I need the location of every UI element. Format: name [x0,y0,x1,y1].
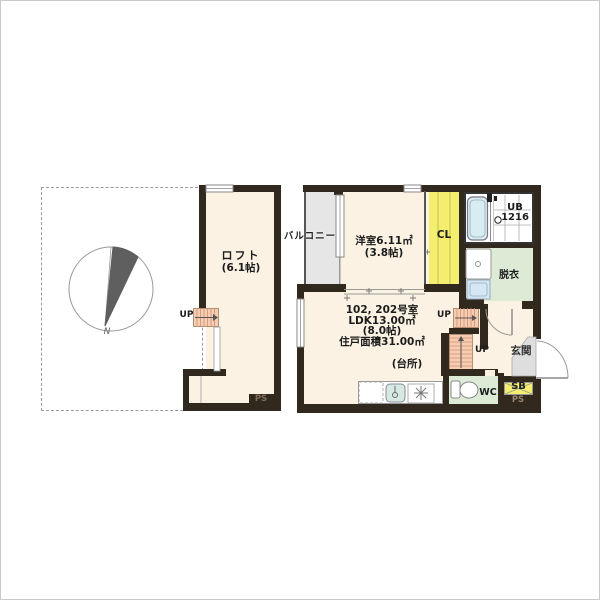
closet-label: CL [429,230,459,241]
wall-segment [297,284,304,299]
ps-left-label: PS [249,395,273,404]
western-room-label: 洋室6.11㎡ [341,236,427,247]
wall-segment [424,284,463,292]
up-main-lower-label: UP [473,346,491,355]
wall-segment [522,301,533,309]
wall-segment [297,404,541,413]
room-loft-extension [189,376,206,403]
wc-door-gap [485,370,495,376]
western-room-size-label: (3.8帖) [341,248,427,259]
total-area-line: 住戸面積31.00㎡ [307,337,457,348]
loft-label: ロフト [206,250,276,262]
wc-label: WC [476,388,500,398]
wall-segment [183,403,281,411]
unit-bath-model-label: 1216 [496,213,534,224]
wall-segment [274,185,281,411]
wall-segment [459,241,541,248]
wall-segment [199,185,281,192]
loft-stairs [193,308,219,327]
balcony-label: バルコニー [283,232,337,242]
floor-plan: バルコニー 洋室6.11㎡ (3.8帖) CL UB 1216 脱衣 玄関 WC… [0,0,600,600]
shoe-box-label: SB [504,382,533,393]
entrance-label: 玄関 [504,346,538,357]
wall-segment [297,347,304,404]
unit-info-block: 102, 202号室 LDK13.00㎡ (8.0帖) 住戸面積31.00㎡ [307,305,457,347]
wall-segment [199,185,206,308]
wall-segment [183,369,226,376]
compass-north-label: N [99,328,115,337]
up-main-upper-label: UP [436,311,452,320]
unit-number-line: 102, 202号室 [307,305,457,316]
kitchen-label: (台所) [377,359,437,370]
ps-right-label: PS [506,396,530,405]
wall-segment [443,376,449,404]
up-loft-label: UP [179,311,194,320]
loft-size-label: (6.1帖) [206,263,276,274]
wall-segment [480,304,488,349]
wall-segment [334,190,343,195]
entrance-door-arc-icon [536,341,568,378]
ldk-tatami-line: (8.0帖) [307,326,457,337]
dressing-label: 脱衣 [489,271,529,282]
kitchen-counter [358,381,443,404]
guide-dashed-area [41,187,203,411]
wall-segment [297,284,346,292]
wall-segment [533,185,541,339]
